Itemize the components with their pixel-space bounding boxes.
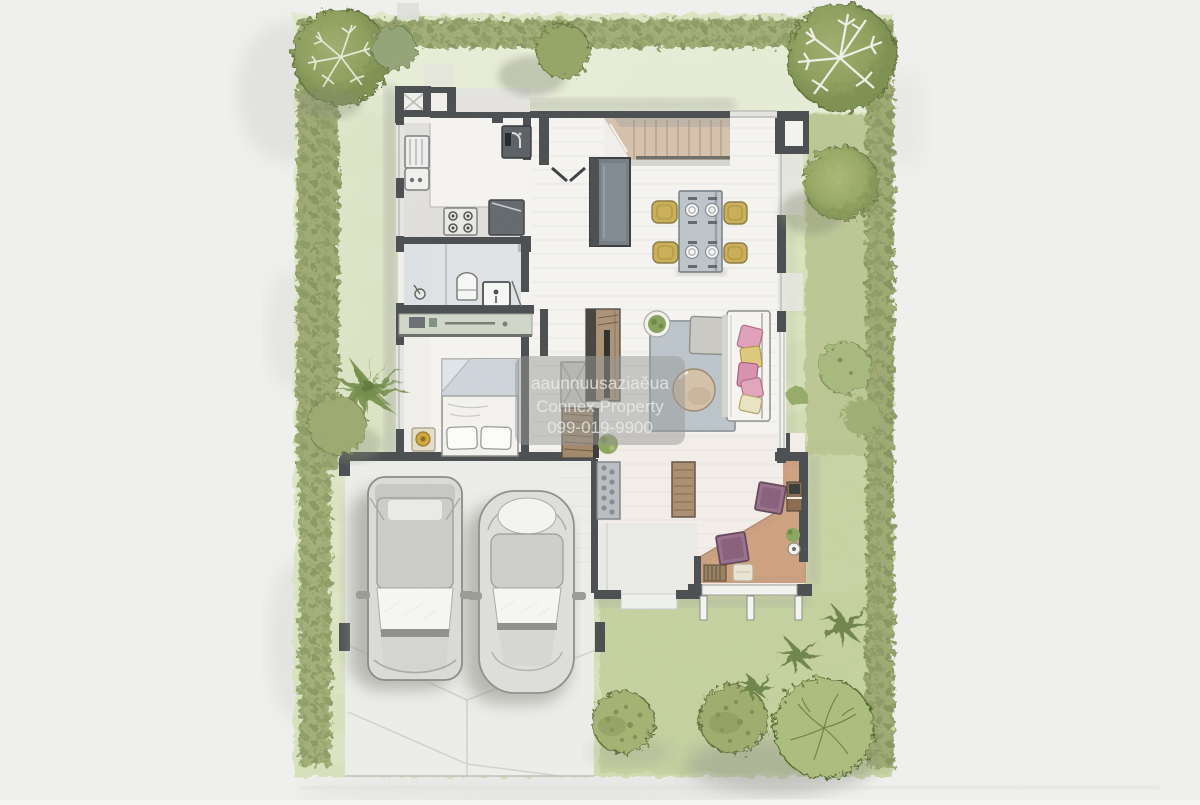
svg-text:aaunnuusaziaěua: aaunnuusaziaěua: [531, 373, 669, 393]
svg-text:099-019-9900: 099-019-9900: [547, 418, 653, 437]
svg-text:Connex Property: Connex Property: [536, 397, 664, 416]
